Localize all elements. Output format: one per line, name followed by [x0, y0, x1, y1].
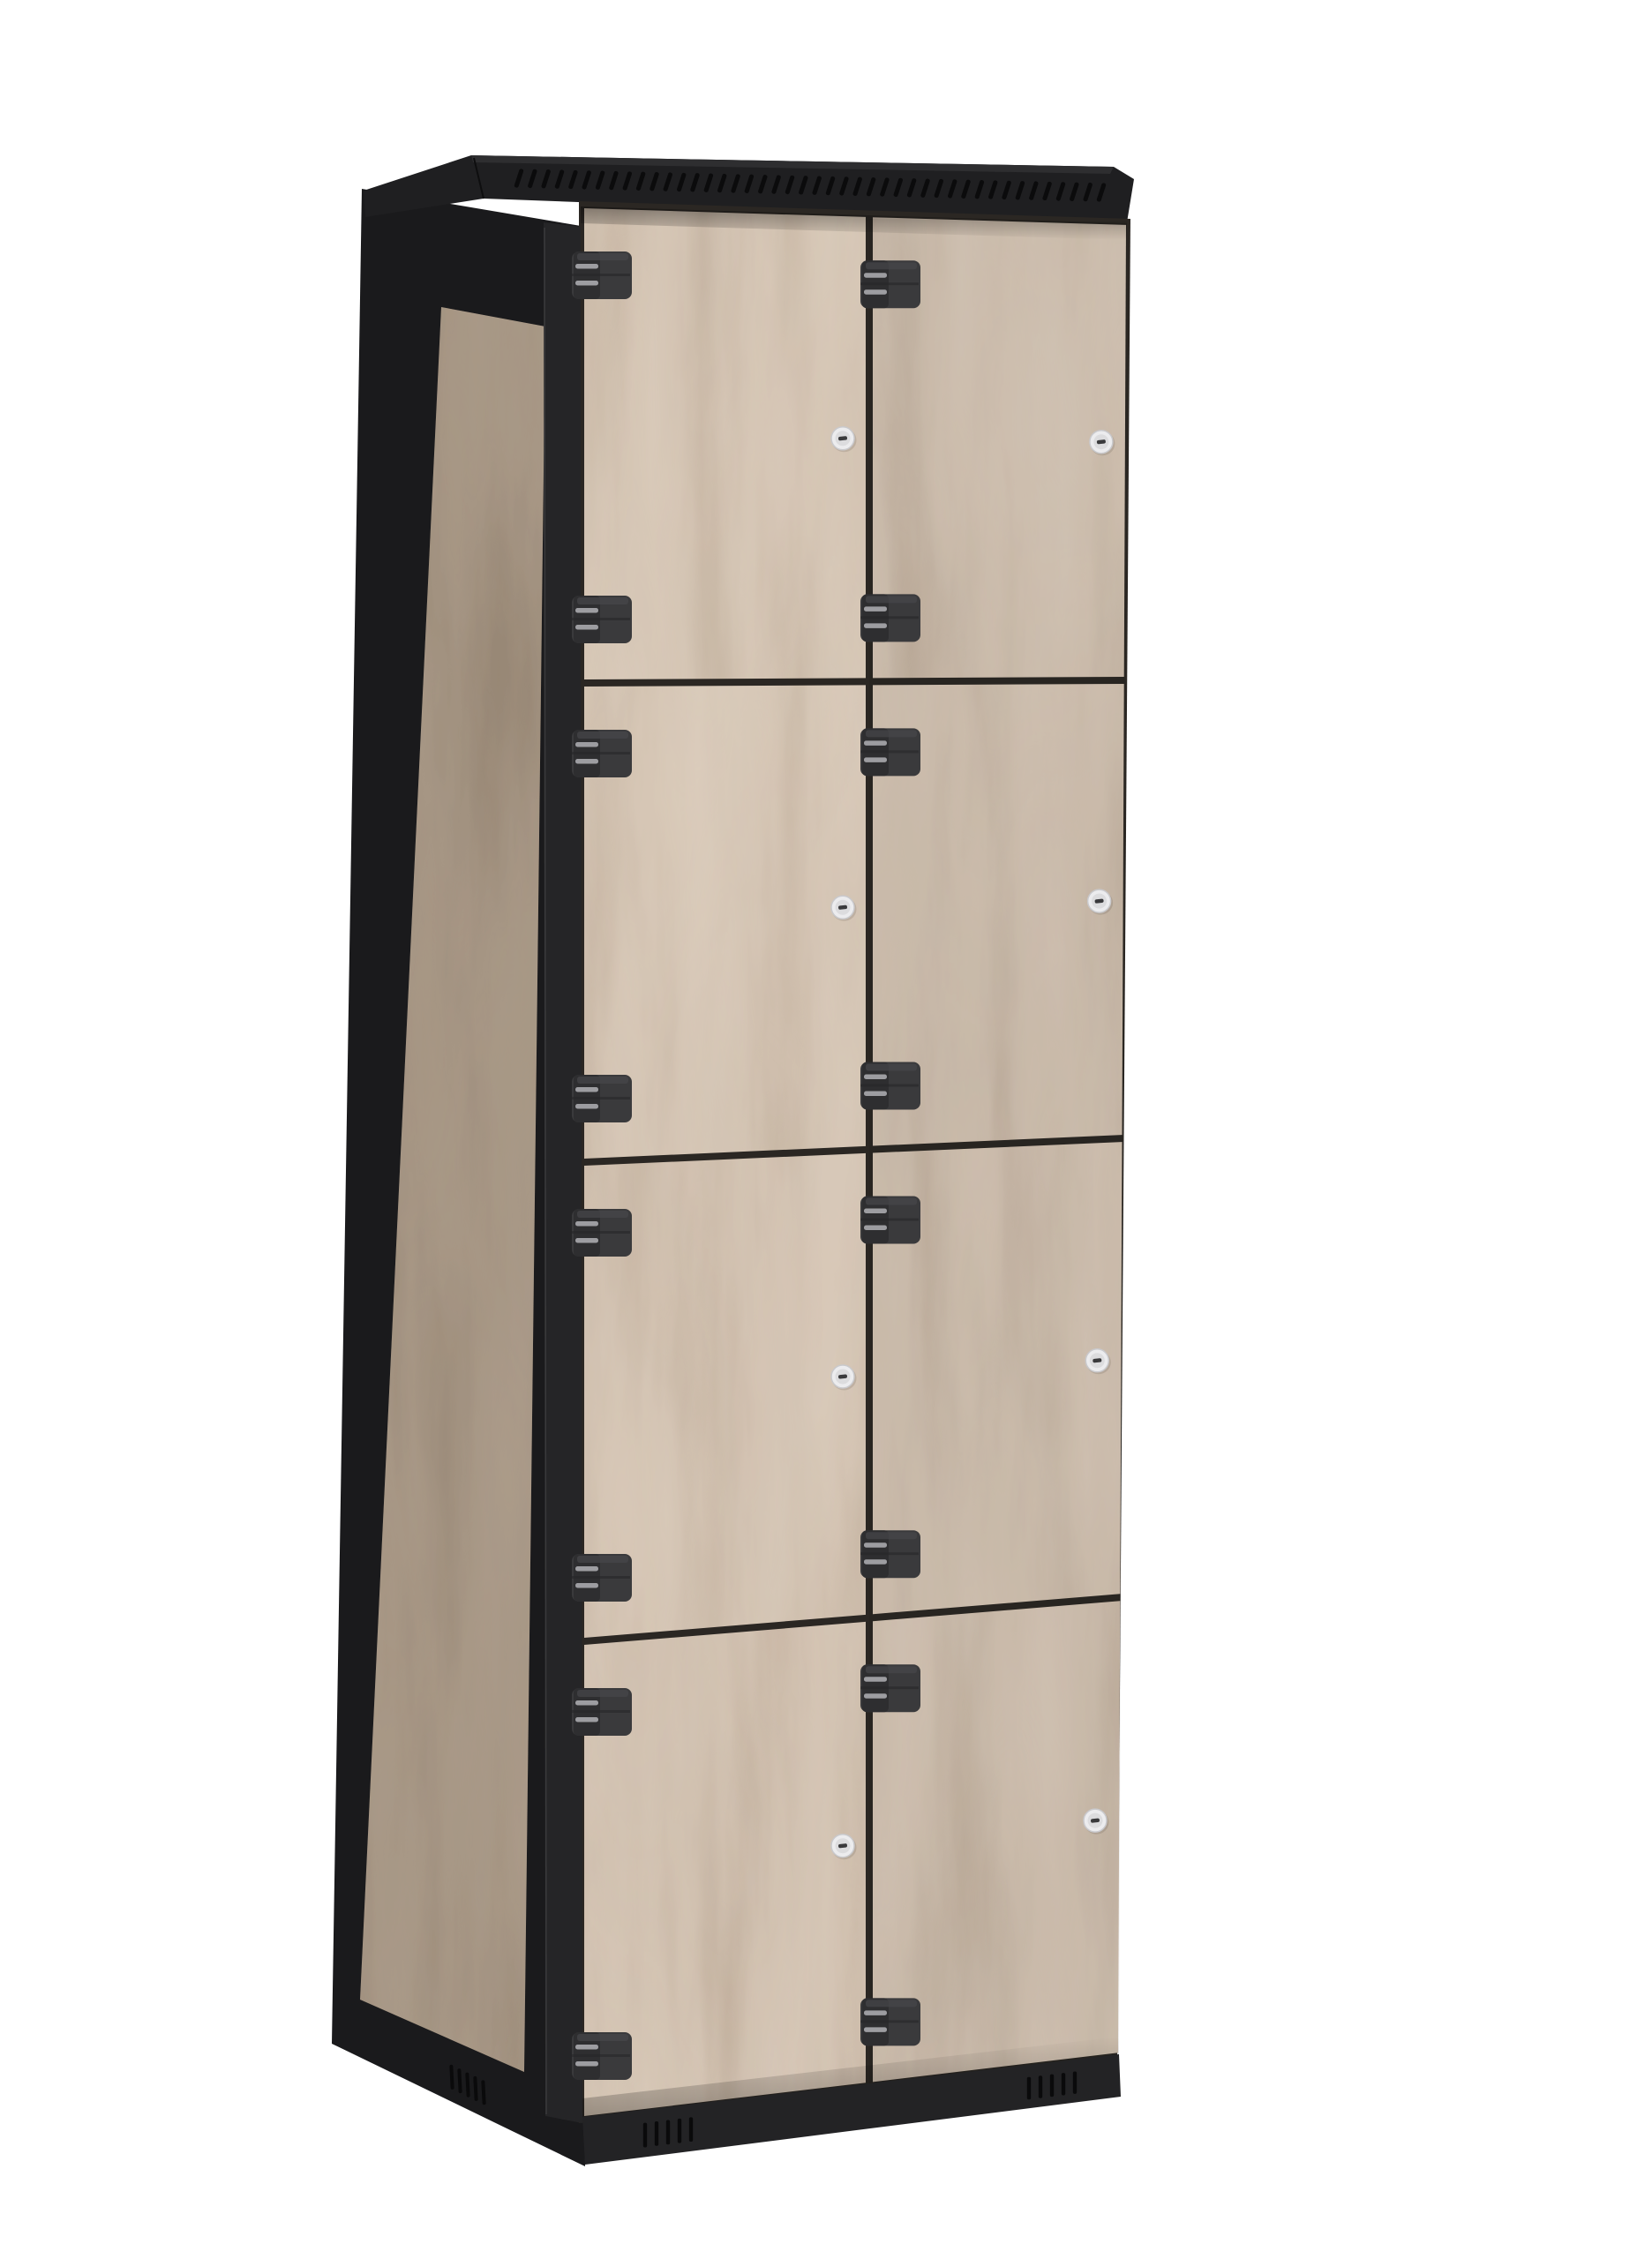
hinge — [860, 594, 920, 642]
hinge — [572, 2032, 632, 2080]
base-vent-slit — [689, 2117, 693, 2142]
hinge — [572, 251, 632, 299]
base-vent-slit — [1073, 2072, 1077, 2094]
hinge — [572, 596, 632, 643]
locker-product-render — [0, 0, 1652, 2259]
base-vent-slit — [643, 2123, 647, 2148]
base-vent-slit — [1039, 2075, 1042, 2098]
base-vent-slit — [1062, 2073, 1065, 2095]
base-vent-slit — [678, 2119, 681, 2143]
right-column-shade — [869, 219, 1127, 2090]
hinge — [860, 1664, 920, 1712]
base-vent-slit — [655, 2121, 658, 2146]
locker-cabinet — [332, 155, 1134, 2166]
base-vent-slit — [1050, 2075, 1054, 2098]
corner-post — [544, 222, 582, 2123]
locker-svg — [0, 0, 1652, 2259]
hinge — [572, 1554, 632, 1602]
hinge — [572, 730, 632, 777]
base-vent-slit — [666, 2120, 670, 2145]
hinge — [572, 1075, 632, 1122]
hinge — [860, 1998, 920, 2045]
hinge — [860, 1530, 920, 1578]
hinge — [860, 260, 920, 308]
hinge — [860, 1062, 920, 1110]
hinge — [860, 1197, 920, 1244]
base-vent-slit — [1027, 2077, 1031, 2100]
hinge — [572, 1688, 632, 1736]
hinge — [572, 1209, 632, 1257]
hinge — [860, 728, 920, 776]
